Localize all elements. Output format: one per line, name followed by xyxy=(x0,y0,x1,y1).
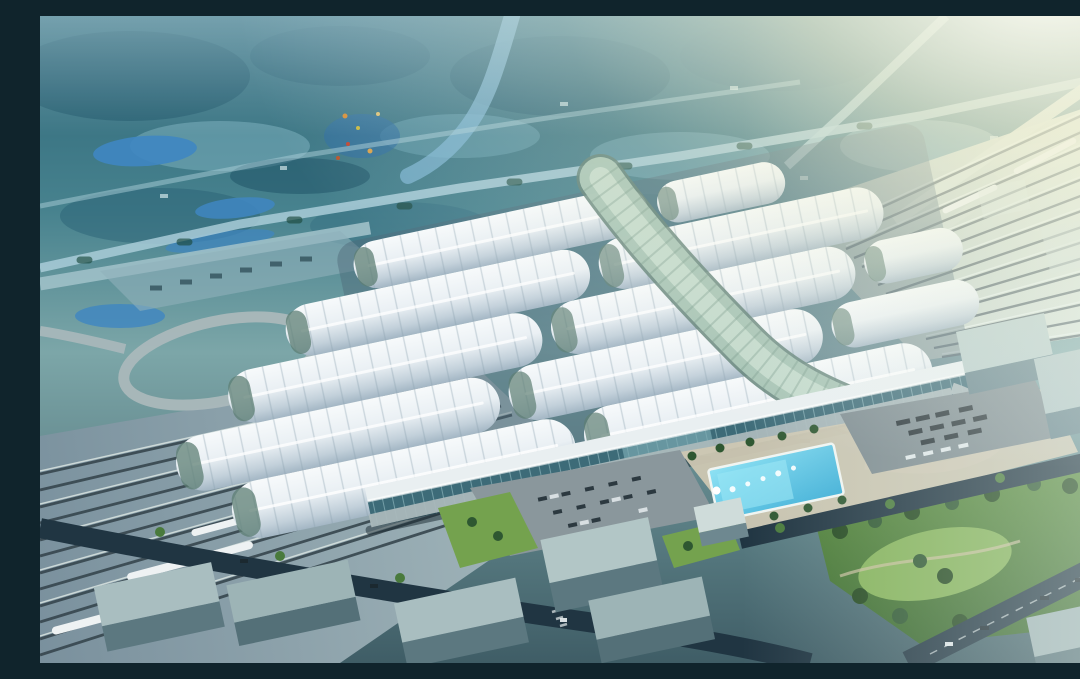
rendering-canvas xyxy=(40,16,1080,663)
atmosphere xyxy=(40,16,1080,663)
aerial-rendering: Daytime aerial CGI masterplan rendering … xyxy=(40,16,1080,663)
sun-flare xyxy=(40,16,1080,663)
